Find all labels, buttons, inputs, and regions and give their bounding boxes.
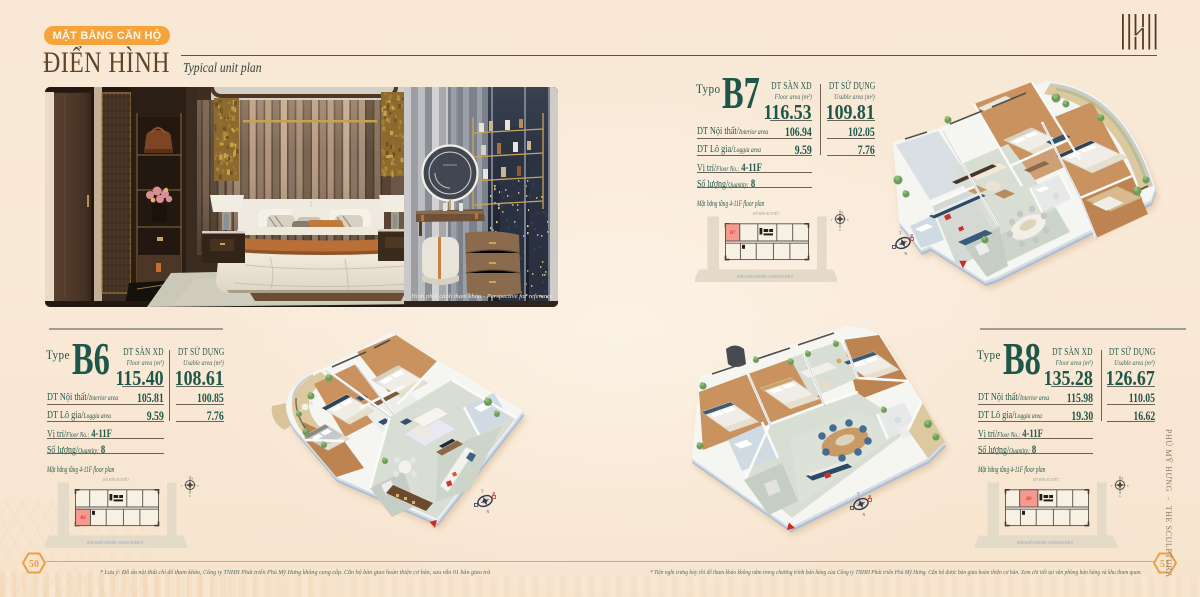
svg-text:50: 50	[29, 559, 39, 570]
svg-text:Đ: Đ	[1127, 485, 1129, 488]
svg-text:T: T	[1111, 485, 1113, 488]
svg-text:Đ: Đ	[847, 219, 849, 222]
svg-text:T: T	[899, 232, 902, 236]
svg-text:HỒ BÁN NGUYỆT: HỒ BÁN NGUYỆT	[1032, 477, 1059, 482]
svg-text:Hình phối cảnh tham khảo - Per: Hình phối cảnh tham khảo - Perspective f…	[410, 293, 553, 300]
svg-text:N: N	[863, 513, 866, 517]
svg-text:B8: B8	[1025, 497, 1032, 502]
svg-text:HỒ BÁN NGUYỆT: HỒ BÁN NGUYỆT	[752, 211, 779, 216]
svg-text:Đ: Đ	[197, 485, 199, 488]
svg-text:T: T	[181, 485, 183, 488]
svg-text:HỒ BÁN NGUYỆT: HỒ BÁN NGUYỆT	[102, 477, 129, 482]
svg-text:T: T	[857, 493, 860, 497]
svg-text:B: B	[842, 212, 844, 215]
svg-text:N: N	[487, 510, 490, 514]
svg-text:Đ: Đ	[911, 234, 914, 238]
svg-text:N: N	[189, 495, 191, 498]
svg-text:Đ: Đ	[869, 495, 872, 499]
svg-text:Đ: Đ	[493, 492, 496, 496]
svg-text:B: B	[1122, 478, 1124, 481]
svg-text:T: T	[481, 490, 484, 494]
svg-text:N: N	[905, 252, 908, 256]
svg-text:N: N	[1119, 495, 1121, 498]
svg-text:N: N	[839, 229, 841, 232]
svg-text:B7: B7	[729, 231, 736, 236]
svg-text:T: T	[831, 219, 833, 222]
svg-text:B6: B6	[79, 516, 86, 521]
svg-text:B: B	[192, 478, 194, 481]
